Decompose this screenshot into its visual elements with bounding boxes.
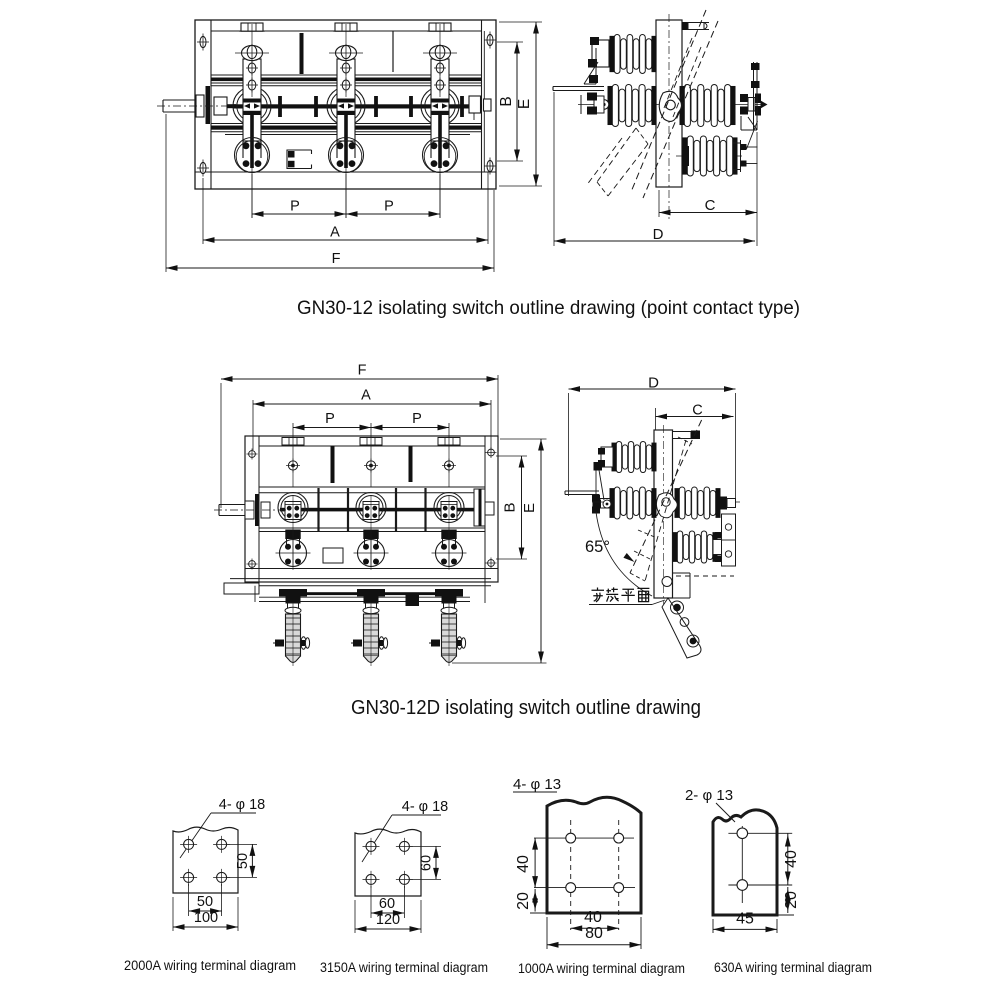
svg-text:40: 40 — [515, 855, 532, 873]
svg-text:D: D — [648, 375, 659, 392]
svg-text:2- φ 13: 2- φ 13 — [685, 787, 733, 804]
svg-text:65°: 65° — [585, 538, 610, 556]
svg-text:E: E — [516, 99, 533, 109]
svg-text:4- φ 18: 4- φ 18 — [219, 797, 265, 813]
svg-text:C: C — [692, 403, 702, 419]
svg-text:50: 50 — [235, 853, 251, 869]
svg-text:3150A wiring terminal diagram: 3150A wiring terminal diagram — [320, 960, 488, 975]
svg-text:40: 40 — [783, 850, 800, 868]
svg-text:C: C — [705, 197, 716, 214]
svg-text:80: 80 — [585, 925, 603, 942]
svg-text:120: 120 — [376, 912, 400, 928]
svg-text:B: B — [502, 502, 519, 512]
svg-text:A: A — [361, 388, 371, 404]
svg-text:E: E — [521, 503, 538, 513]
svg-text:P: P — [412, 411, 422, 427]
svg-text:50: 50 — [197, 894, 213, 910]
svg-text:F: F — [332, 251, 341, 267]
svg-text:20: 20 — [783, 891, 800, 909]
svg-text:A: A — [330, 225, 340, 241]
svg-text:4- φ 18: 4- φ 18 — [402, 799, 448, 815]
svg-text:4- φ 13: 4- φ 13 — [513, 776, 561, 793]
svg-text:100: 100 — [194, 910, 218, 926]
svg-text:D: D — [653, 226, 664, 243]
svg-text:45: 45 — [736, 911, 754, 928]
svg-text:1000A wiring terminal diagram: 1000A wiring terminal diagram — [518, 961, 685, 976]
svg-text:GN30-12 isolating switch outli: GN30-12 isolating switch outline drawing… — [297, 297, 800, 319]
svg-text:GN30-12D isolating switch outl: GN30-12D isolating switch outline drawin… — [351, 697, 701, 719]
svg-text:630A wiring terminal diagram: 630A wiring terminal diagram — [714, 960, 872, 975]
svg-text:P: P — [290, 199, 300, 215]
svg-text:B: B — [498, 96, 515, 106]
svg-text:60: 60 — [419, 855, 435, 871]
svg-text:P: P — [325, 411, 335, 427]
svg-text:2000A wiring terminal diagram: 2000A wiring terminal diagram — [124, 958, 296, 973]
svg-text:P: P — [384, 199, 394, 215]
svg-text:20: 20 — [515, 892, 532, 910]
svg-text:60: 60 — [379, 896, 395, 912]
svg-text:F: F — [358, 363, 367, 379]
svg-text:40: 40 — [584, 909, 602, 926]
